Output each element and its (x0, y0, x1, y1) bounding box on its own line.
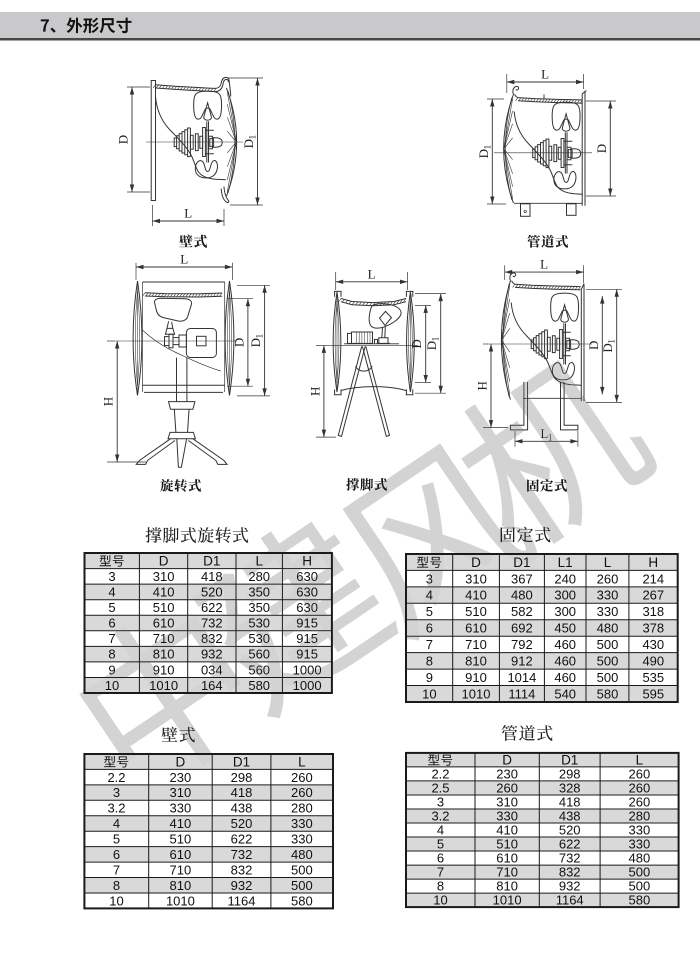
svg-text:367: 367 (511, 571, 533, 586)
svg-text:310: 310 (170, 785, 192, 800)
svg-text:L: L (368, 266, 376, 281)
svg-text:510: 510 (465, 604, 487, 619)
svg-text:810: 810 (170, 878, 192, 893)
svg-text:418: 418 (559, 795, 581, 810)
svg-text:230: 230 (170, 770, 192, 785)
svg-text:1014: 1014 (507, 670, 536, 685)
svg-text:932: 932 (231, 878, 253, 893)
svg-text:810: 810 (496, 879, 518, 894)
svg-text:418: 418 (231, 785, 253, 800)
svg-text:L: L (636, 753, 644, 768)
svg-text:520: 520 (559, 823, 581, 838)
svg-text:580: 580 (597, 686, 619, 701)
svg-text:4: 4 (113, 816, 120, 831)
svg-text:330: 330 (597, 604, 619, 619)
svg-text:2.5: 2.5 (431, 781, 449, 796)
svg-text:595: 595 (642, 686, 664, 701)
svg-text:L: L (298, 755, 306, 770)
svg-text:732: 732 (231, 847, 253, 862)
svg-text:438: 438 (559, 809, 581, 824)
svg-text:410: 410 (170, 816, 192, 831)
svg-text:D: D (159, 554, 169, 569)
svg-text:260: 260 (597, 571, 619, 586)
svg-text:410: 410 (465, 588, 487, 603)
svg-text:330: 330 (629, 823, 651, 838)
svg-text:692: 692 (511, 621, 533, 636)
svg-text:710: 710 (170, 862, 192, 877)
svg-text:580: 580 (629, 893, 651, 908)
svg-text:520: 520 (231, 816, 253, 831)
svg-text:910: 910 (465, 670, 487, 685)
svg-text:510: 510 (170, 832, 192, 847)
svg-text:610: 610 (170, 847, 192, 862)
svg-text:500: 500 (629, 879, 651, 894)
svg-text:3: 3 (113, 785, 120, 800)
svg-text:240: 240 (554, 571, 576, 586)
svg-text:3: 3 (108, 569, 115, 584)
svg-text:430: 430 (642, 637, 664, 652)
svg-text:480: 480 (597, 621, 619, 636)
svg-text:D1: D1 (233, 755, 250, 770)
svg-text:438: 438 (231, 801, 253, 816)
svg-text:500: 500 (597, 654, 619, 669)
svg-text:832: 832 (231, 862, 253, 877)
svg-text:3: 3 (437, 795, 444, 810)
svg-text:330: 330 (291, 832, 313, 847)
svg-text:500: 500 (597, 670, 619, 685)
svg-text:1164: 1164 (556, 893, 584, 908)
svg-text:H: H (475, 381, 490, 390)
svg-text:328: 328 (559, 781, 581, 796)
svg-text:260: 260 (496, 781, 518, 796)
svg-text:8: 8 (113, 878, 120, 893)
svg-text:260: 260 (291, 785, 313, 800)
svg-text:H: H (101, 397, 116, 406)
svg-text:1114: 1114 (508, 686, 535, 701)
svg-text:5: 5 (426, 604, 433, 619)
svg-text:480: 480 (291, 847, 313, 862)
svg-text:260: 260 (629, 767, 651, 782)
svg-text:582: 582 (511, 604, 533, 619)
svg-text:10: 10 (422, 686, 436, 701)
svg-text:8: 8 (426, 654, 433, 669)
svg-text:622: 622 (559, 837, 581, 852)
svg-text:3.2: 3.2 (107, 801, 125, 816)
svg-text:L: L (540, 257, 548, 272)
svg-text:330: 330 (170, 801, 192, 816)
svg-text:310: 310 (465, 571, 487, 586)
svg-text:5: 5 (437, 837, 444, 852)
svg-text:D: D (176, 755, 186, 770)
svg-text:298: 298 (231, 770, 253, 785)
svg-text:410: 410 (496, 823, 518, 838)
svg-text:1010: 1010 (166, 893, 195, 908)
svg-text:D: D (231, 338, 246, 347)
svg-text:300: 300 (554, 604, 576, 619)
svg-text:7: 7 (437, 865, 444, 880)
svg-text:L: L (180, 252, 188, 267)
svg-text:480: 480 (629, 851, 651, 866)
svg-text:L: L (604, 555, 612, 570)
svg-text:500: 500 (291, 878, 313, 893)
svg-text:260: 260 (629, 781, 651, 796)
svg-text:H: H (648, 555, 658, 570)
svg-text:622: 622 (231, 832, 253, 847)
svg-text:792: 792 (511, 637, 533, 652)
svg-text:4: 4 (437, 823, 444, 838)
svg-text:D: D (502, 753, 512, 768)
svg-text:318: 318 (642, 604, 664, 619)
svg-text:7: 7 (426, 637, 433, 652)
svg-text:510: 510 (496, 837, 518, 852)
svg-text:280: 280 (629, 809, 651, 824)
svg-text:L: L (541, 67, 549, 82)
svg-text:500: 500 (291, 862, 313, 877)
svg-text:510: 510 (153, 600, 175, 615)
svg-text:310: 310 (153, 569, 175, 584)
svg-text:8: 8 (108, 647, 115, 662)
svg-text:540: 540 (554, 686, 576, 701)
svg-text:912: 912 (511, 654, 533, 669)
svg-text:10: 10 (433, 893, 447, 908)
svg-text:330: 330 (291, 816, 313, 831)
svg-text:710: 710 (465, 637, 487, 652)
svg-text:832: 832 (559, 865, 581, 880)
svg-text:610: 610 (153, 616, 175, 631)
svg-text:280: 280 (291, 801, 313, 816)
svg-text:H: H (307, 387, 322, 396)
svg-text:932: 932 (559, 879, 581, 894)
svg-text:214: 214 (642, 571, 664, 586)
svg-text:500: 500 (629, 865, 651, 880)
svg-text:10: 10 (109, 893, 123, 908)
svg-text:535: 535 (642, 670, 664, 685)
svg-text:450: 450 (554, 621, 576, 636)
svg-text:D1: D1 (561, 753, 578, 768)
svg-text:732: 732 (559, 851, 581, 866)
svg-text:5: 5 (113, 832, 120, 847)
svg-text:460: 460 (554, 670, 576, 685)
svg-text:300: 300 (554, 588, 576, 603)
svg-text:1164: 1164 (228, 893, 256, 908)
svg-text:230: 230 (496, 767, 518, 782)
svg-text:260: 260 (629, 795, 651, 810)
svg-text:480: 480 (511, 588, 533, 603)
svg-text:2.2: 2.2 (107, 770, 125, 785)
svg-text:5: 5 (108, 600, 115, 615)
svg-text:7: 7 (113, 862, 120, 877)
svg-text:6: 6 (113, 847, 120, 862)
svg-text:D: D (586, 341, 601, 350)
svg-text:D: D (409, 339, 424, 348)
svg-text:330: 330 (629, 837, 651, 852)
svg-text:330: 330 (597, 588, 619, 603)
svg-text:L1: L1 (558, 555, 573, 570)
svg-text:460: 460 (554, 654, 576, 669)
svg-text:298: 298 (559, 767, 581, 782)
svg-text:9: 9 (426, 670, 433, 685)
svg-text:610: 610 (496, 851, 518, 866)
svg-text:410: 410 (153, 585, 175, 600)
svg-text:8: 8 (437, 879, 444, 894)
svg-text:330: 330 (496, 809, 518, 824)
svg-text:260: 260 (291, 770, 313, 785)
svg-text:732: 732 (201, 616, 223, 631)
svg-text:6: 6 (437, 851, 444, 866)
svg-text:710: 710 (496, 865, 518, 880)
svg-text:2.2: 2.2 (431, 767, 449, 782)
svg-text:490: 490 (642, 654, 664, 669)
svg-text:580: 580 (248, 678, 270, 693)
svg-text:1010: 1010 (462, 686, 491, 701)
svg-text:580: 580 (291, 893, 313, 908)
svg-text:D1: D1 (203, 554, 220, 569)
svg-text:810: 810 (465, 654, 487, 669)
svg-text:D: D (594, 144, 609, 153)
svg-text:267: 267 (642, 588, 664, 603)
svg-text:6: 6 (426, 621, 433, 636)
svg-text:4: 4 (108, 585, 115, 600)
svg-text:3.2: 3.2 (431, 809, 449, 824)
svg-text:460: 460 (554, 637, 576, 652)
svg-text:500: 500 (597, 637, 619, 652)
svg-text:378: 378 (642, 621, 664, 636)
svg-text:6: 6 (108, 616, 115, 631)
svg-text:L: L (184, 206, 192, 221)
svg-text:D: D (116, 135, 131, 144)
svg-text:310: 310 (496, 795, 518, 810)
svg-text:610: 610 (465, 621, 487, 636)
svg-text:1010: 1010 (493, 893, 522, 908)
